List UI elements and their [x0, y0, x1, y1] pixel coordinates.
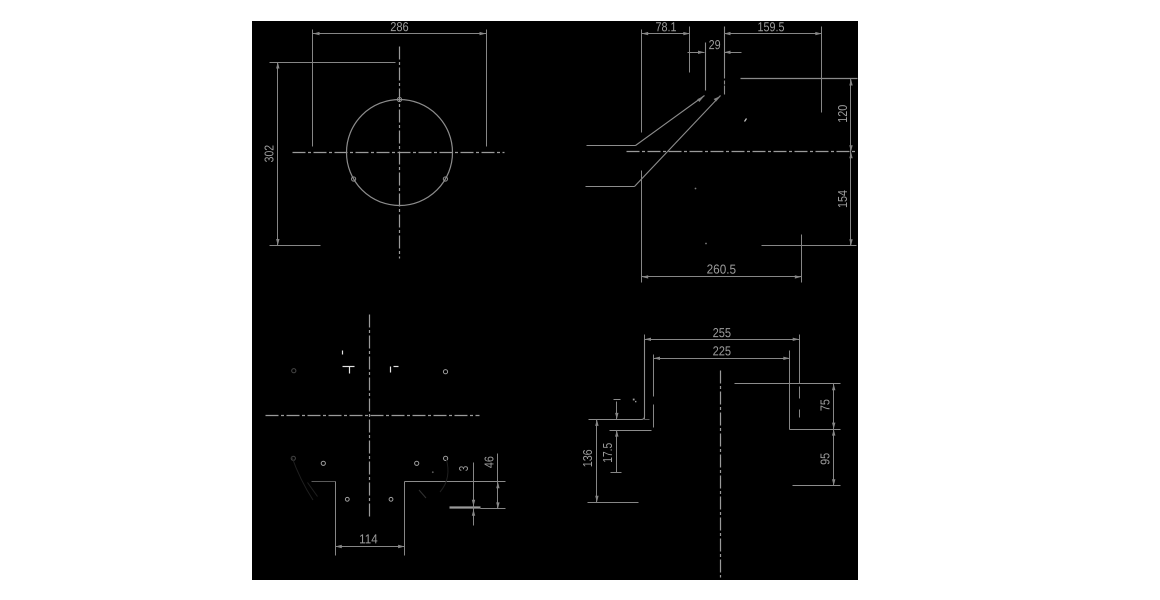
svg-text:17.5: 17.5 — [600, 443, 615, 463]
svg-text:3: 3 — [456, 466, 471, 472]
svg-text:159.5: 159.5 — [757, 19, 784, 34]
svg-text:302: 302 — [262, 145, 277, 163]
svg-text:75: 75 — [818, 399, 833, 411]
svg-text:286: 286 — [390, 19, 409, 34]
svg-text:225: 225 — [713, 343, 732, 358]
svg-text:46: 46 — [482, 456, 497, 468]
svg-text:154: 154 — [835, 190, 850, 208]
svg-text:120: 120 — [835, 105, 850, 123]
svg-text:260.5: 260.5 — [707, 262, 737, 277]
svg-text:29: 29 — [709, 37, 721, 52]
svg-text:136: 136 — [580, 449, 595, 467]
svg-text:255: 255 — [713, 325, 732, 340]
svg-text:114: 114 — [359, 531, 378, 546]
svg-text:95: 95 — [818, 453, 833, 465]
svg-text:78.1: 78.1 — [655, 19, 676, 34]
